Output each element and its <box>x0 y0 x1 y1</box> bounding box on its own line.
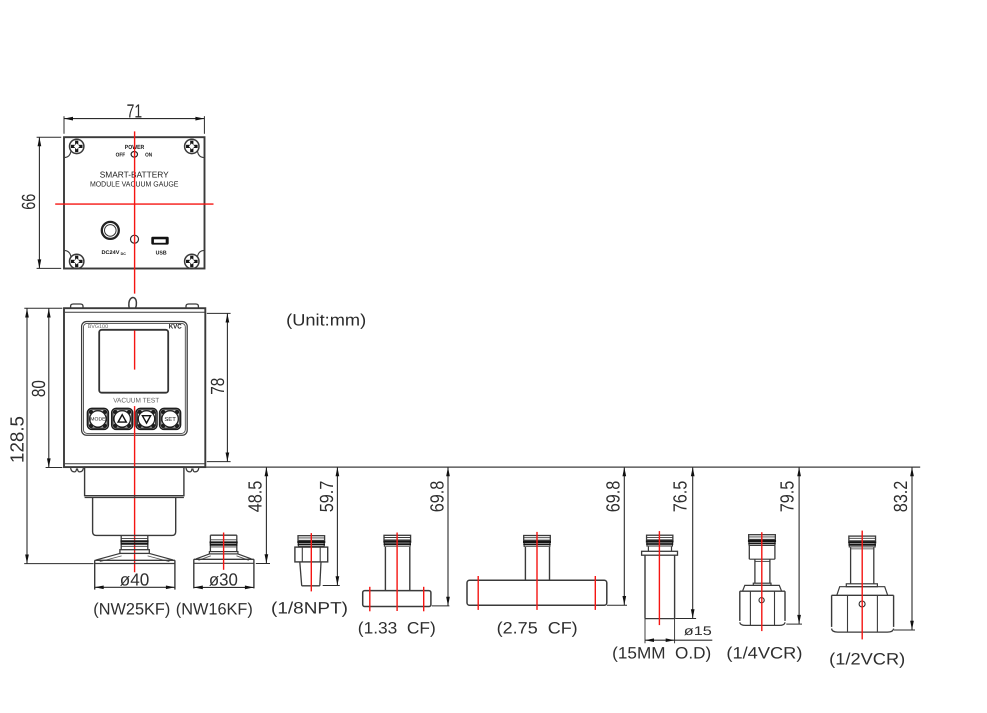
svg-text:69.8: 69.8 <box>427 481 448 513</box>
svg-text:ø30: ø30 <box>209 569 238 589</box>
svg-text:ON: ON <box>145 153 152 159</box>
svg-text:128.5: 128.5 <box>8 416 29 463</box>
svg-text:(Unit:mm): (Unit:mm) <box>286 312 366 330</box>
svg-text:(2.75 CF): (2.75 CF) <box>497 620 578 638</box>
svg-text:(NW16KF): (NW16KF) <box>176 601 253 619</box>
svg-text:(1/4VCR): (1/4VCR) <box>726 644 802 662</box>
svg-text:48.5: 48.5 <box>246 481 267 513</box>
svg-text:KVC: KVC <box>169 323 182 330</box>
svg-text:78: 78 <box>208 378 229 395</box>
svg-text:SET: SET <box>164 417 176 423</box>
svg-text:79.5: 79.5 <box>777 481 798 513</box>
svg-text:66: 66 <box>19 194 40 210</box>
svg-text:(NW25KF): (NW25KF) <box>93 601 170 619</box>
svg-text:59.7: 59.7 <box>317 481 338 513</box>
svg-text:DC24V: DC24V <box>102 250 121 256</box>
svg-text:USB: USB <box>156 251 167 257</box>
svg-text:83.2: 83.2 <box>891 481 912 513</box>
svg-text:80: 80 <box>29 380 50 397</box>
svg-text:76.5: 76.5 <box>671 481 692 513</box>
svg-text:DC: DC <box>121 252 127 256</box>
svg-text:VACUUM TEST: VACUUM TEST <box>113 398 159 405</box>
svg-text:69.8: 69.8 <box>604 481 625 513</box>
svg-text:(15MM O.D): (15MM O.D) <box>612 644 711 662</box>
svg-text:(1/2VCR): (1/2VCR) <box>829 650 905 668</box>
svg-text:71: 71 <box>127 102 143 123</box>
svg-text:ø15: ø15 <box>684 624 712 638</box>
svg-text:(1/8NPT): (1/8NPT) <box>271 600 348 618</box>
svg-text:(1.33 CF): (1.33 CF) <box>358 619 436 637</box>
svg-text:OFF: OFF <box>116 153 126 159</box>
svg-text:MODE: MODE <box>90 417 105 423</box>
svg-text:ø40: ø40 <box>120 569 150 589</box>
